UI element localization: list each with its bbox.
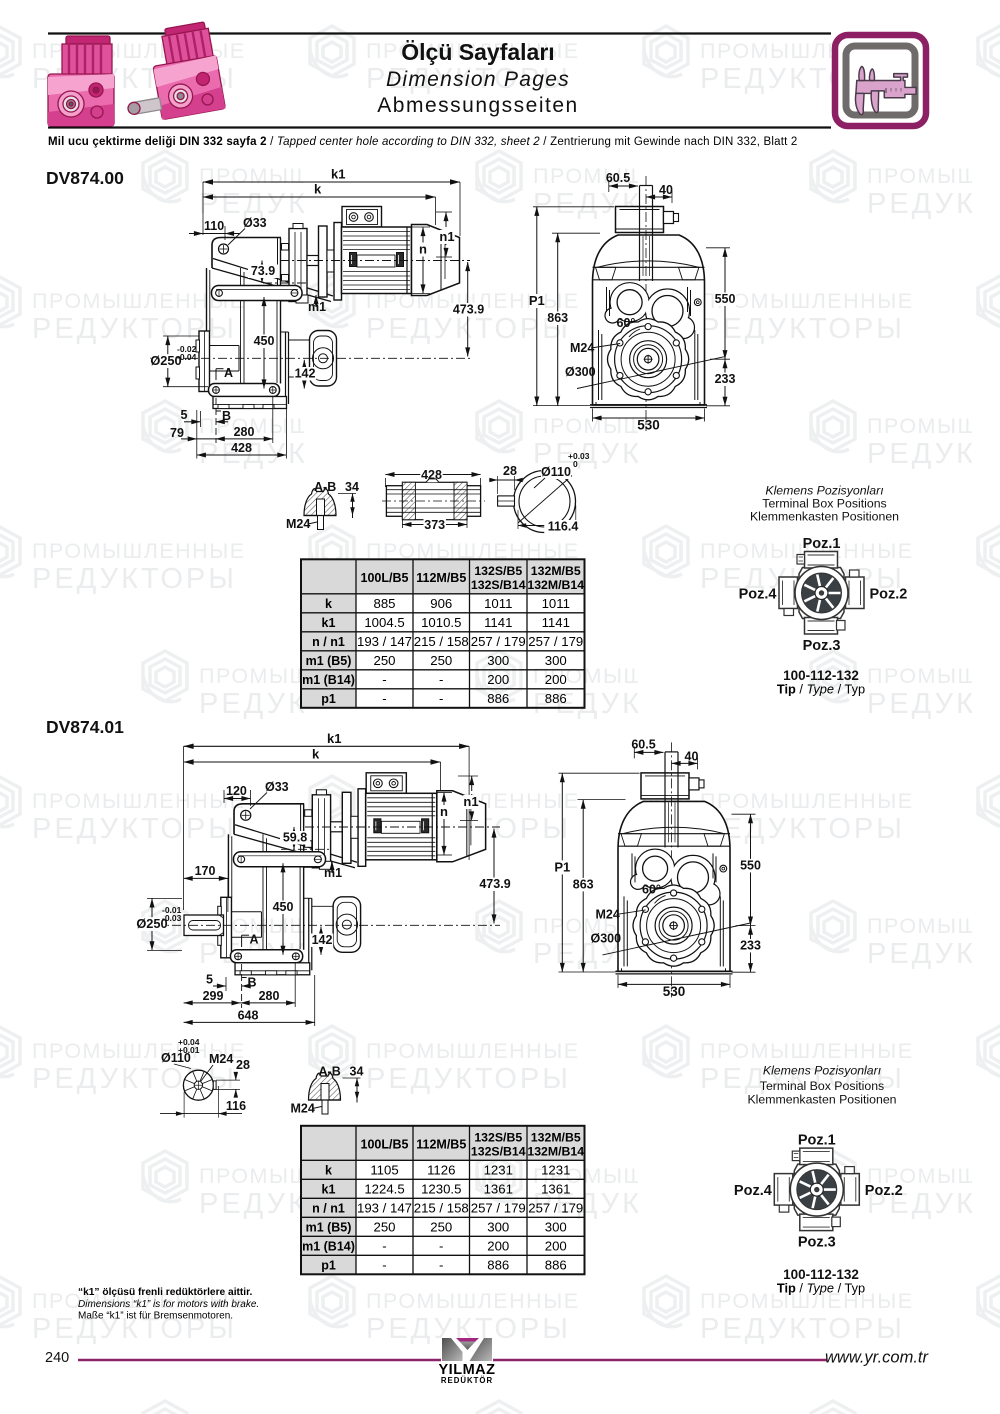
svg-text:P1: P1 [554,859,570,874]
svg-text:A-B: A-B [319,1065,341,1079]
svg-text:Tip / Type / Typ: Tip / Type / Typ [777,1280,865,1295]
svg-text:Maße “k1” ist für Bremsenmotor: Maße “k1” ist für Bremsenmotoren. [78,1311,233,1322]
svg-text:m1 (B14): m1 (B14) [302,1239,355,1253]
svg-text:+0.03: +0.03 [568,451,590,461]
svg-text:B: B [248,976,257,990]
svg-text:200: 200 [487,1238,509,1253]
svg-text:-: - [439,672,443,687]
svg-text:257 / 179: 257 / 179 [528,1200,583,1215]
svg-text:34: 34 [350,1065,364,1079]
svg-text:300: 300 [487,653,509,668]
svg-text:P1: P1 [529,293,545,308]
svg-text:-: - [382,672,386,687]
svg-text:Klemmenkasten Positionen: Klemmenkasten Positionen [747,1092,896,1106]
svg-text:215 / 158: 215 / 158 [414,1200,469,1215]
svg-text:1011: 1011 [542,596,570,611]
svg-text:233: 233 [715,372,736,386]
svg-text:p1: p1 [321,1258,336,1272]
svg-text:132S/B5: 132S/B5 [474,564,522,578]
svg-text:120: 120 [226,784,247,798]
svg-text:Ölçü Sayfaları: Ölçü Sayfaları [401,39,554,65]
svg-text:k: k [325,597,332,611]
svg-text:886: 886 [545,1257,567,1272]
svg-text:1004.5: 1004.5 [364,615,404,630]
svg-text:73.9: 73.9 [251,264,275,278]
svg-text:59.8: 59.8 [283,831,307,845]
svg-text:132M/B5: 132M/B5 [531,1130,581,1144]
svg-text:Terminal Box Positions: Terminal Box Positions [762,497,886,511]
svg-text:886: 886 [487,691,509,706]
svg-text:k1: k1 [327,731,341,746]
svg-text:Ø110: Ø110 [541,465,571,479]
svg-text:60°: 60° [617,316,636,330]
svg-text:n: n [440,804,448,819]
svg-text:233: 233 [740,938,761,952]
svg-text:n1: n1 [439,229,454,244]
svg-text:k1: k1 [322,1182,336,1196]
svg-text:A: A [224,366,233,380]
svg-text:1231: 1231 [484,1162,513,1177]
svg-text:60.5: 60.5 [631,737,655,751]
svg-text:863: 863 [547,311,568,325]
svg-text:-: - [439,1257,443,1272]
svg-text:1126: 1126 [427,1162,455,1177]
svg-text:40: 40 [659,183,673,197]
svg-text:p1: p1 [321,692,336,706]
svg-text:Klemens Pozisyonları: Klemens Pozisyonları [765,484,883,498]
svg-text:132S/B5: 132S/B5 [474,1130,522,1144]
svg-text:DV874.01: DV874.01 [46,717,124,737]
svg-text:132M/B14: 132M/B14 [527,1144,584,1158]
svg-text:885: 885 [373,596,395,611]
svg-text:m1: m1 [308,300,326,314]
svg-text:193 / 147: 193 / 147 [357,634,412,649]
svg-text:250: 250 [373,653,395,668]
svg-text:1224.5: 1224.5 [364,1181,404,1196]
svg-text:n / n1: n / n1 [312,1201,345,1215]
svg-text:79: 79 [170,426,184,440]
svg-text:“k1” ölçüsü frenli redüktörler: “k1” ölçüsü frenli redüktörlere aittir. [78,1287,253,1298]
svg-text:373: 373 [424,518,445,532]
svg-text:M24: M24 [570,341,594,355]
svg-text:60°: 60° [642,882,661,896]
svg-text:193 / 147: 193 / 147 [357,1200,412,1215]
svg-text:132M/B14: 132M/B14 [527,578,584,592]
svg-text:-: - [382,1238,386,1253]
svg-text:257 / 179: 257 / 179 [471,634,526,649]
svg-text:Klemens Pozisyonları: Klemens Pozisyonları [763,1064,881,1078]
svg-text:473.9: 473.9 [453,303,484,317]
svg-text:5: 5 [206,973,213,987]
svg-text:132S/B14: 132S/B14 [471,1144,526,1158]
svg-text:k1: k1 [322,616,336,630]
svg-text:250: 250 [373,1219,395,1234]
svg-text:250: 250 [430,653,452,668]
svg-text:142: 142 [312,933,333,947]
svg-text:k: k [325,1163,332,1177]
svg-text:110: 110 [204,219,224,233]
svg-text:-: - [439,691,443,706]
svg-text:Terminal Box Positions: Terminal Box Positions [760,1079,884,1093]
svg-text:300: 300 [487,1219,509,1234]
svg-text:1230.5: 1230.5 [421,1181,461,1196]
svg-text:M24: M24 [286,517,310,531]
svg-text:M24: M24 [596,907,620,921]
svg-text:Mil ucu çektirme deliği DIN 33: Mil ucu çektirme deliği DIN 332 sayfa 2 … [48,136,798,148]
svg-text:530: 530 [663,984,686,999]
svg-text:Ø33: Ø33 [243,216,267,230]
svg-text:200: 200 [545,672,567,687]
svg-text:648: 648 [238,1009,259,1023]
svg-text:200: 200 [545,1238,567,1253]
svg-text:M24: M24 [209,1052,233,1066]
svg-text:m1 (B14): m1 (B14) [302,673,355,687]
svg-text:863: 863 [573,877,594,891]
svg-text:n / n1: n / n1 [312,635,345,649]
svg-text:0: 0 [573,459,578,469]
svg-text:k: k [312,747,320,762]
svg-text:299: 299 [203,989,224,1003]
svg-text:170: 170 [195,864,216,878]
svg-text:m1 (B5): m1 (B5) [306,654,352,668]
svg-text:-0.04: -0.04 [177,352,197,362]
svg-text:240: 240 [45,1350,69,1366]
svg-text:-: - [382,1257,386,1272]
svg-text:280: 280 [259,989,280,1003]
svg-text:112M/B5: 112M/B5 [416,571,466,585]
svg-text:257 / 179: 257 / 179 [528,634,583,649]
svg-text:34: 34 [345,480,359,494]
svg-text:Ø33: Ø33 [265,780,289,794]
svg-text:Abmessungsseiten: Abmessungsseiten [377,94,578,117]
svg-text:28: 28 [236,1058,250,1072]
svg-text:132S/B14: 132S/B14 [471,578,526,592]
svg-text:M24: M24 [291,1102,315,1116]
svg-text:Dimension Pages: Dimension Pages [386,68,570,91]
svg-text:Ø110: Ø110 [161,1051,191,1065]
svg-text:116.4: 116.4 [548,520,579,534]
svg-text:300: 300 [545,1219,567,1234]
svg-text:Ø300: Ø300 [565,365,596,379]
svg-text:k: k [314,182,322,197]
svg-text:1141: 1141 [484,615,512,630]
svg-text:-: - [382,691,386,706]
svg-text:B: B [222,409,231,423]
svg-text:1361: 1361 [541,1181,570,1196]
svg-text:Ø300: Ø300 [591,931,622,945]
svg-text:www.yr.com.tr: www.yr.com.tr [825,1349,929,1367]
svg-text:1231: 1231 [541,1162,570,1177]
svg-text:-0.03: -0.03 [162,913,182,923]
svg-text:-: - [439,1238,443,1253]
svg-text:250: 250 [430,1219,452,1234]
svg-text:100L/B5: 100L/B5 [361,1137,409,1151]
svg-text:k1: k1 [331,167,345,182]
svg-text:Klemmenkasten Positionen: Klemmenkasten Positionen [750,510,899,524]
svg-text:1011: 1011 [484,596,512,611]
svg-text:280: 280 [234,425,255,439]
svg-text:1010.5: 1010.5 [421,615,461,630]
svg-text:m1: m1 [324,866,342,880]
svg-text:116: 116 [226,1099,246,1113]
svg-text:28: 28 [503,464,517,478]
svg-text:112M/B5: 112M/B5 [416,1137,466,1151]
svg-text:Dimensions “k1” is for motors: Dimensions “k1” is for motors with brake… [78,1299,259,1310]
svg-text:60.5: 60.5 [606,171,630,185]
svg-text:886: 886 [487,1257,509,1272]
svg-text:n: n [419,242,427,257]
svg-text:1361: 1361 [484,1181,513,1196]
svg-text:n1: n1 [463,794,478,809]
svg-text:A-B: A-B [314,480,336,494]
svg-text:906: 906 [430,596,452,611]
svg-text:DV874.00: DV874.00 [46,168,124,188]
svg-text:450: 450 [273,900,294,914]
svg-text:257 / 179: 257 / 179 [471,1200,526,1215]
svg-text:1105: 1105 [370,1162,398,1177]
svg-text:Tip / Type / Typ: Tip / Type / Typ [777,681,865,696]
svg-text:473.9: 473.9 [479,877,510,891]
svg-text:132M/B5: 132M/B5 [531,564,581,578]
svg-text:530: 530 [637,418,660,433]
svg-text:886: 886 [545,691,567,706]
svg-text:40: 40 [685,749,699,763]
svg-text:550: 550 [740,858,761,872]
svg-text:300: 300 [545,653,567,668]
svg-text:100L/B5: 100L/B5 [361,571,409,585]
svg-text:A: A [250,933,259,947]
svg-text:5: 5 [181,408,188,422]
svg-text:215 / 158: 215 / 158 [414,634,469,649]
svg-text:450: 450 [254,334,275,348]
svg-text:142: 142 [295,367,316,381]
svg-text:428: 428 [231,441,252,455]
svg-text:1141: 1141 [542,615,570,630]
svg-text:REDÜKTÖR: REDÜKTÖR [441,1376,493,1385]
svg-text:550: 550 [715,292,736,306]
svg-text:m1 (B5): m1 (B5) [306,1220,352,1234]
svg-text:200: 200 [487,672,509,687]
